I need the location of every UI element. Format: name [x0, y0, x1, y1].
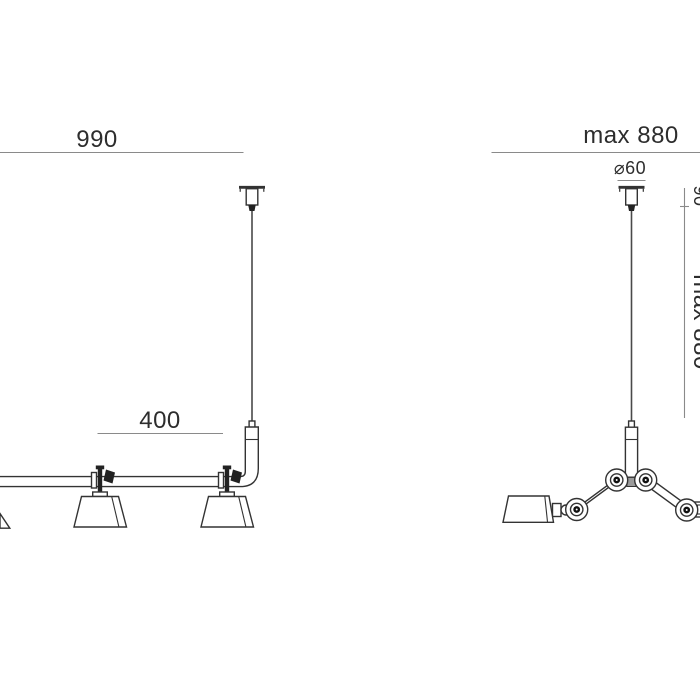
- joint-bolt-center: [645, 479, 647, 481]
- left-shade-2: [201, 497, 254, 528]
- left-shade-1: [74, 497, 127, 528]
- clamp-plate: [92, 473, 97, 489]
- left-width-dimension-label: 990: [76, 126, 118, 153]
- lamp-dimension-drawing: 990 400: [0, 0, 700, 700]
- canopy-body: [246, 189, 258, 205]
- right-height-dimension-label: max 880: [688, 274, 700, 370]
- right-drawing: max 880 ⌀60 90 max 880: [492, 122, 700, 522]
- center-stem: [625, 427, 637, 477]
- technical-drawing-page: 990 400: [0, 0, 700, 700]
- joint-bolt-center: [616, 479, 618, 481]
- left-spacing-dimension-label: 400: [139, 407, 181, 434]
- shoulder-joint-left: [606, 469, 628, 491]
- edge-clipped-shade-fragment: [0, 514, 10, 529]
- right-lamp-shade: [503, 496, 571, 522]
- canopy-height-label: 90: [690, 185, 700, 206]
- shade-body: [201, 497, 254, 528]
- shoulder-joint-right: [635, 469, 657, 491]
- bolt-cap: [223, 466, 231, 470]
- right-ceiling-canopy: [619, 187, 645, 211]
- right-width-dimension-label: max 880: [583, 122, 679, 149]
- canopy-diameter-label: ⌀60: [614, 158, 646, 178]
- elbow-joint-left: [566, 499, 588, 521]
- stem-top-cap: [629, 421, 635, 427]
- joint-bolt-center: [686, 509, 688, 511]
- cord-grip: [248, 205, 255, 211]
- left-ceiling-canopy: [239, 187, 265, 211]
- clamp-plate: [219, 473, 224, 489]
- left-drawing: 990 400: [0, 126, 265, 528]
- shade-bracket: [553, 504, 562, 517]
- cord-grip: [628, 205, 635, 211]
- elbow-joint-right: [676, 499, 698, 521]
- joint-bolt-center: [576, 509, 578, 511]
- canopy-body: [626, 189, 638, 205]
- tube-top-cap: [249, 421, 255, 427]
- shade-body: [74, 497, 127, 528]
- bolt-cap: [96, 466, 104, 470]
